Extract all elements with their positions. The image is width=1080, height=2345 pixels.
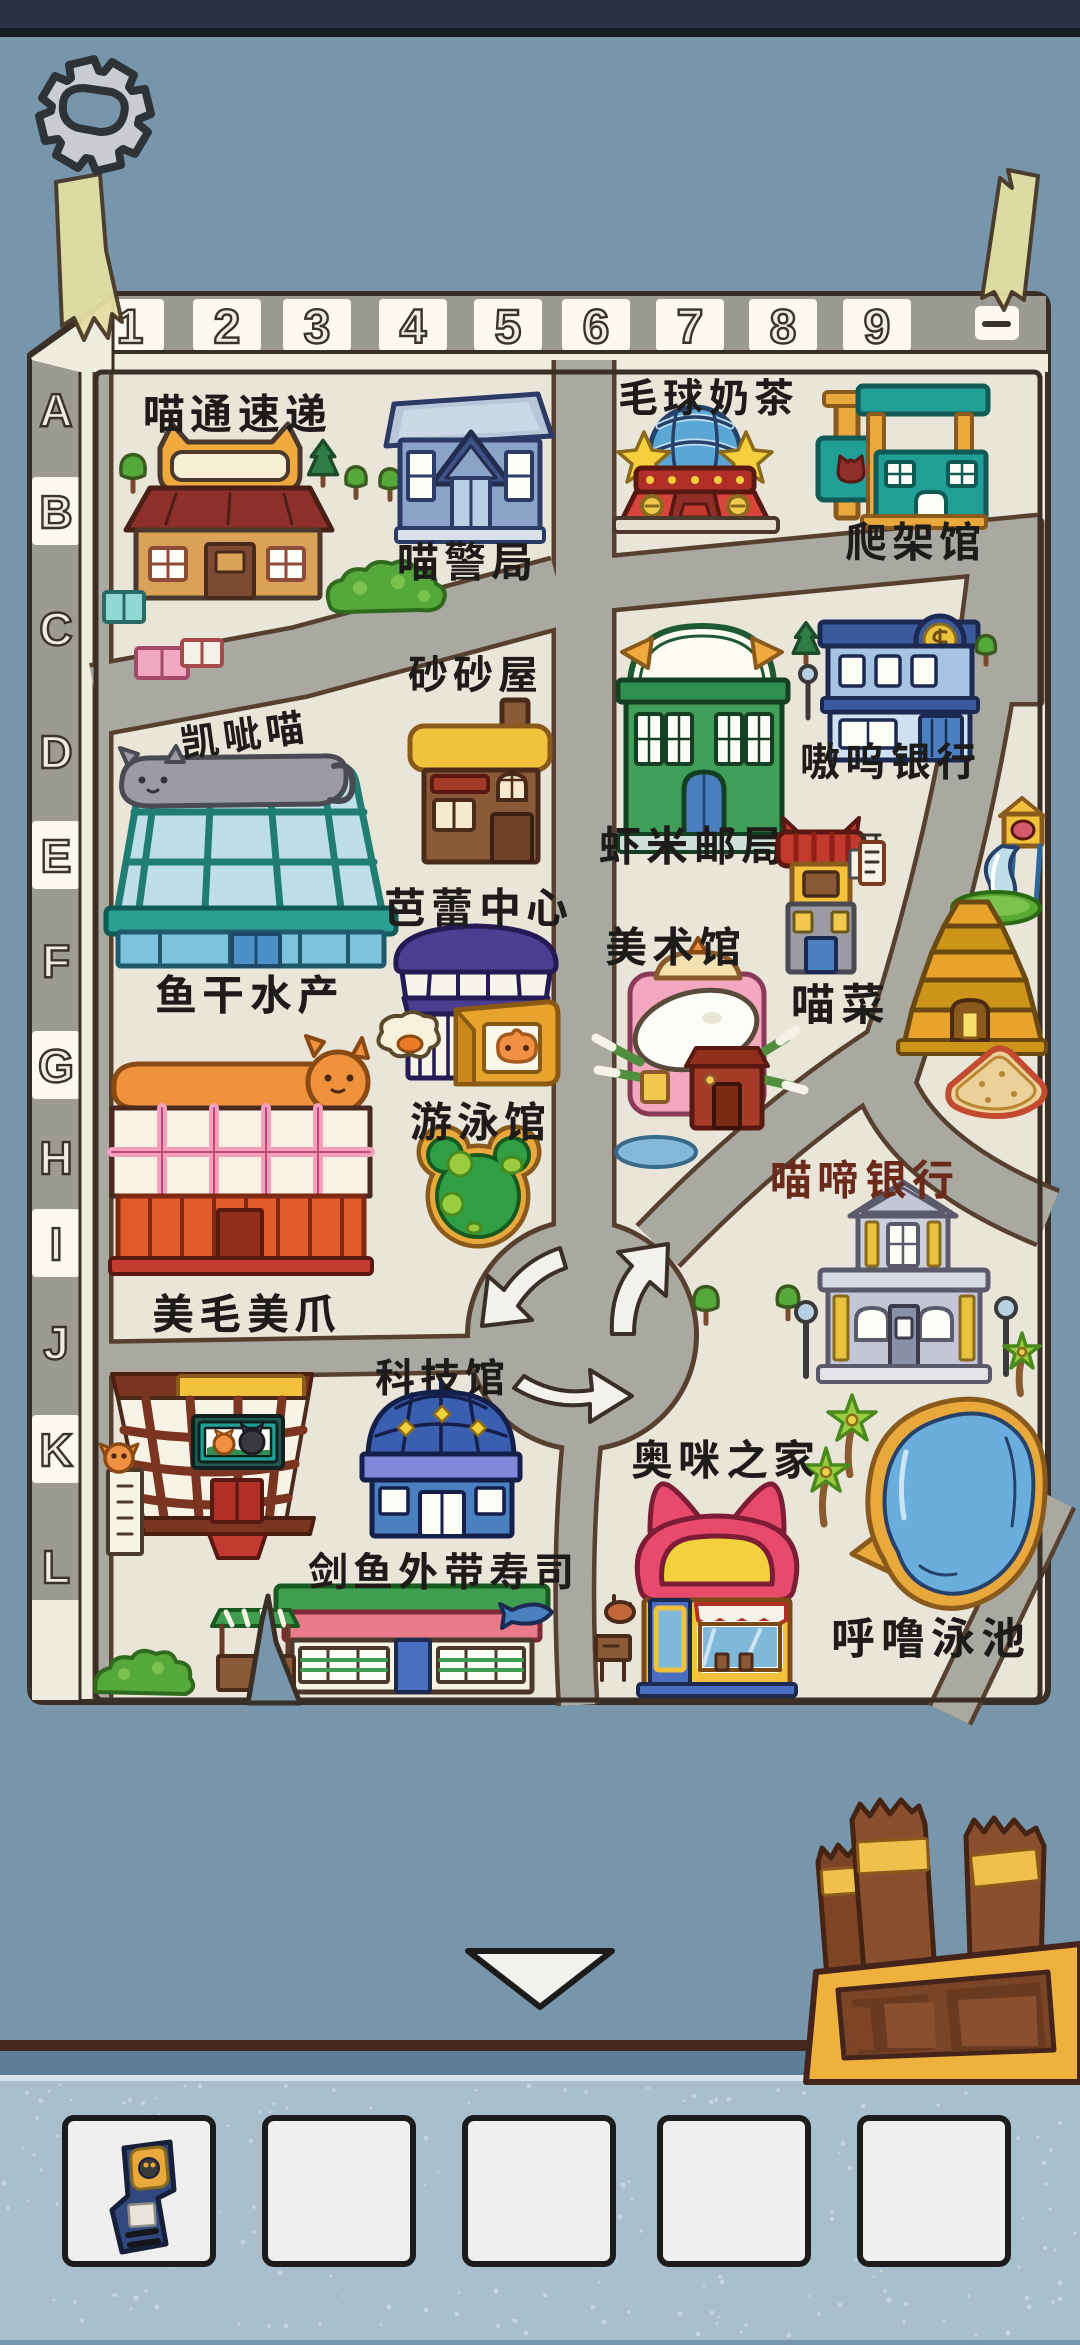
svg-text:4: 4 (400, 301, 427, 354)
svg-text:D: D (39, 726, 72, 778)
svg-text:K: K (39, 1424, 72, 1476)
svg-text:7: 7 (677, 301, 704, 354)
svg-text:L: L (42, 1541, 70, 1593)
svg-text:E: E (41, 830, 72, 882)
svg-text:F: F (42, 935, 70, 987)
svg-text:2: 2 (214, 301, 241, 354)
svg-text:8: 8 (770, 301, 797, 354)
svg-text:3: 3 (304, 301, 331, 354)
svg-text:I: I (50, 1218, 63, 1270)
svg-text:C: C (39, 603, 72, 655)
svg-text:9: 9 (864, 301, 891, 354)
svg-text:H: H (39, 1132, 72, 1184)
svg-text:G: G (38, 1040, 74, 1092)
svg-text:A: A (39, 384, 72, 436)
svg-text:B: B (39, 486, 72, 538)
svg-text:5: 5 (495, 301, 522, 354)
svg-text:J: J (43, 1317, 69, 1369)
svg-text:6: 6 (583, 301, 610, 354)
